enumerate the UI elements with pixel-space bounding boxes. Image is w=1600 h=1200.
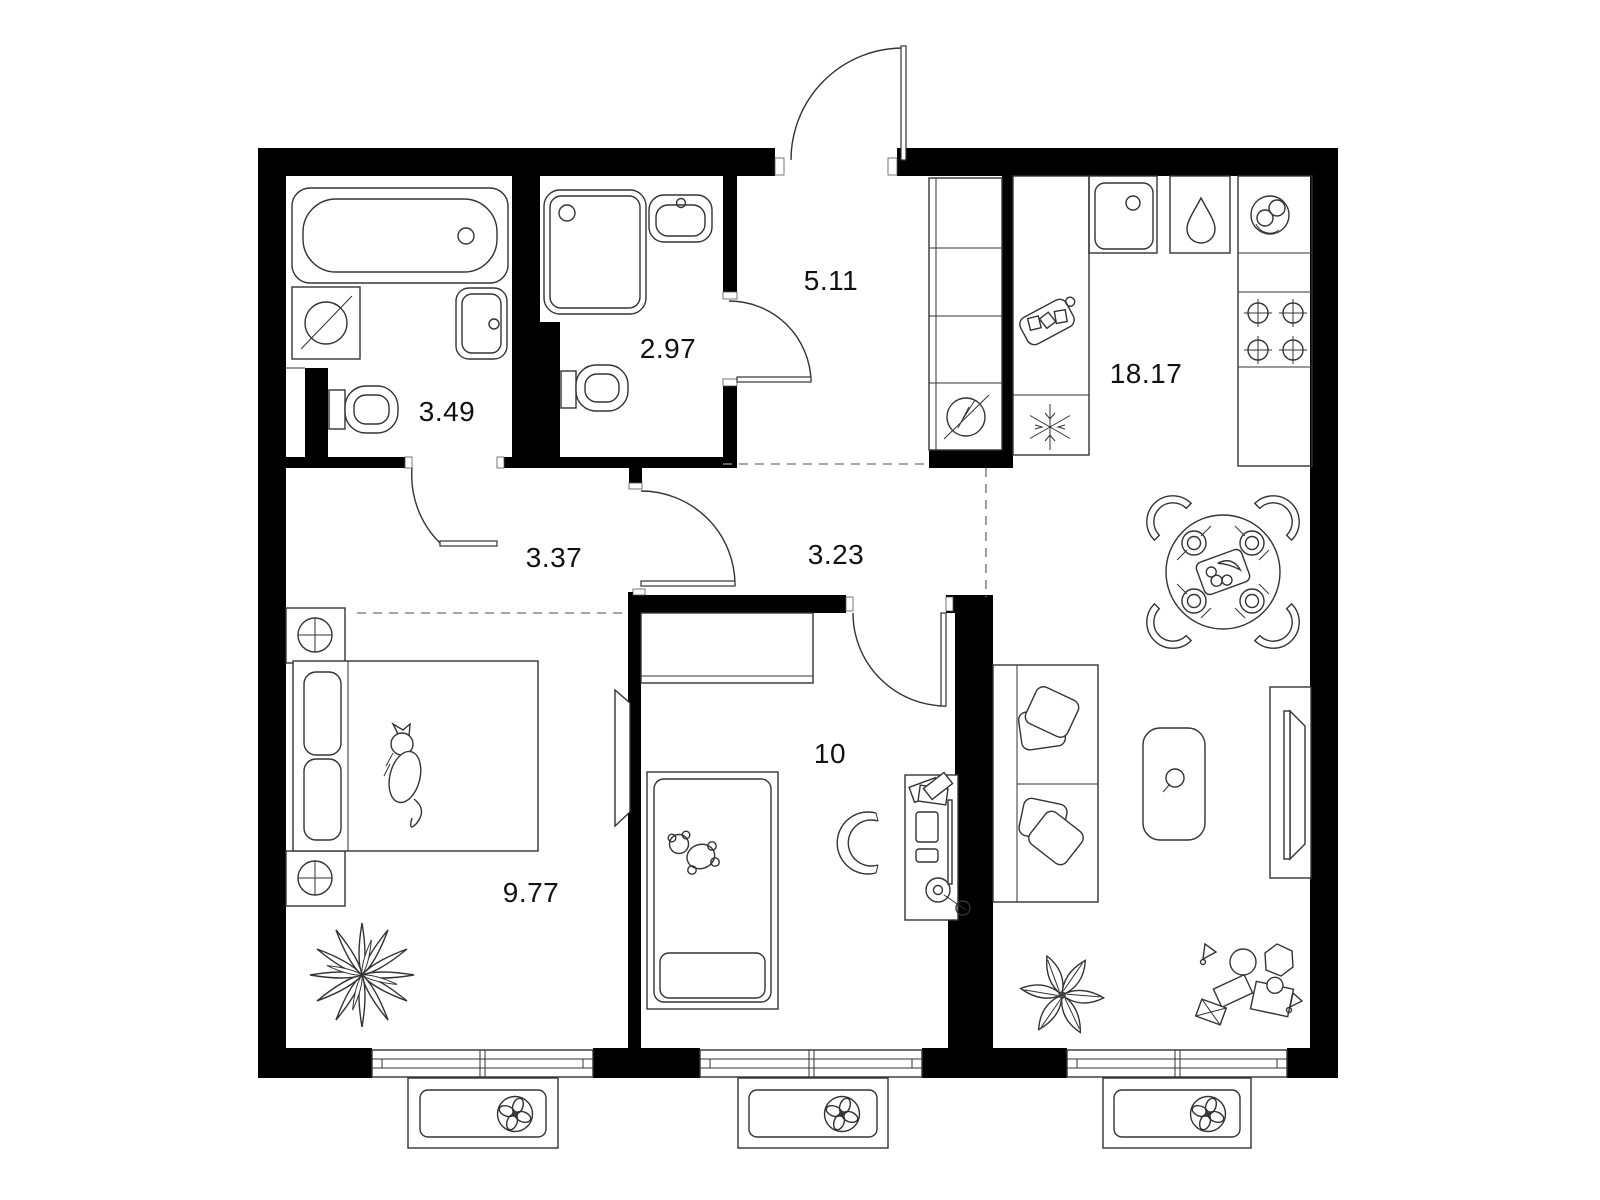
bathroom-door bbox=[405, 457, 504, 546]
room-label-kitchen-living: 18.17 bbox=[1110, 358, 1183, 389]
floor-plan-page: 3.49 2.97 5.11 3.37 3.23 18.17 9.77 10 bbox=[0, 0, 1600, 1200]
water-drop-icon bbox=[1187, 198, 1215, 243]
desk-chair-icon bbox=[837, 812, 878, 874]
washing-machine-icon bbox=[292, 287, 360, 359]
room-label-inner-hall: 3.23 bbox=[808, 539, 865, 570]
window-living-room bbox=[1067, 1050, 1287, 1077]
single-bed-icon bbox=[647, 772, 778, 1009]
wardrobe-icon bbox=[641, 613, 813, 683]
kitchen-sink-icon bbox=[1095, 183, 1153, 249]
dishes-icon bbox=[1251, 196, 1289, 234]
stove-burners-icon bbox=[1244, 299, 1307, 364]
room-label-corridor: 3.37 bbox=[526, 542, 583, 573]
sofa-icon bbox=[993, 665, 1098, 902]
bathtub-icon bbox=[292, 188, 508, 283]
mirror-icon bbox=[615, 690, 630, 826]
door-arc bbox=[412, 468, 440, 543]
children-room-furniture bbox=[641, 613, 970, 1009]
floor-plan-drawing: 3.49 2.97 5.11 3.37 3.23 18.17 9.77 10 bbox=[0, 0, 1600, 1200]
toilet-icon bbox=[329, 386, 398, 433]
nightstand-lamp-icon bbox=[286, 851, 345, 906]
bedroom-furniture bbox=[286, 608, 630, 1027]
room-label-bedroom: 9.77 bbox=[503, 877, 560, 908]
hand-basin-icon bbox=[456, 288, 507, 359]
window-children-room bbox=[700, 1050, 922, 1077]
door-leaf bbox=[641, 581, 735, 586]
door-leaf bbox=[737, 377, 811, 382]
ac-unit-bedroom bbox=[408, 1078, 558, 1148]
monitor-icon bbox=[948, 800, 952, 884]
ventilation-fan-icon bbox=[498, 1097, 533, 1132]
shower-icon bbox=[544, 190, 646, 314]
room-label-children-room: 10 bbox=[814, 738, 846, 769]
ac-unit-living bbox=[1103, 1078, 1251, 1148]
tv-console-icon bbox=[1270, 687, 1311, 878]
ventilation-fan-icon bbox=[825, 1097, 860, 1132]
room-label-entrance-hall: 5.11 bbox=[804, 265, 858, 296]
ventilation-fan-icon bbox=[1191, 1097, 1226, 1132]
door-leaf bbox=[901, 46, 906, 160]
entrance-door bbox=[775, 46, 906, 175]
door-arc bbox=[641, 491, 735, 585]
window-bedroom bbox=[372, 1050, 593, 1077]
plant-icon bbox=[310, 923, 414, 1027]
zone-boundary-lines bbox=[357, 464, 986, 613]
door-arc bbox=[729, 301, 811, 381]
door-arc bbox=[853, 613, 946, 706]
door-arc bbox=[791, 48, 903, 160]
toys-icon bbox=[1196, 944, 1302, 1025]
kitchen-counters bbox=[1013, 176, 1312, 466]
room-label-bathroom: 3.49 bbox=[419, 396, 476, 427]
dining-set bbox=[1136, 485, 1310, 659]
shower-room-door bbox=[723, 292, 811, 386]
corridor-door bbox=[629, 483, 735, 595]
door-leaf bbox=[941, 613, 946, 706]
toilet-icon bbox=[561, 365, 628, 411]
plant-icon bbox=[1020, 954, 1104, 1035]
children-room-door bbox=[846, 597, 953, 706]
door-leaf bbox=[440, 541, 497, 546]
shower-room-fixtures bbox=[544, 190, 712, 411]
room-label-shower-room: 2.97 bbox=[640, 333, 697, 364]
ac-unit-children bbox=[738, 1078, 888, 1148]
nightstand-lamp-icon bbox=[286, 608, 345, 663]
coffee-table-icon bbox=[1143, 728, 1205, 840]
hallway-closet bbox=[929, 178, 1002, 450]
hand-basin-icon bbox=[649, 195, 712, 242]
